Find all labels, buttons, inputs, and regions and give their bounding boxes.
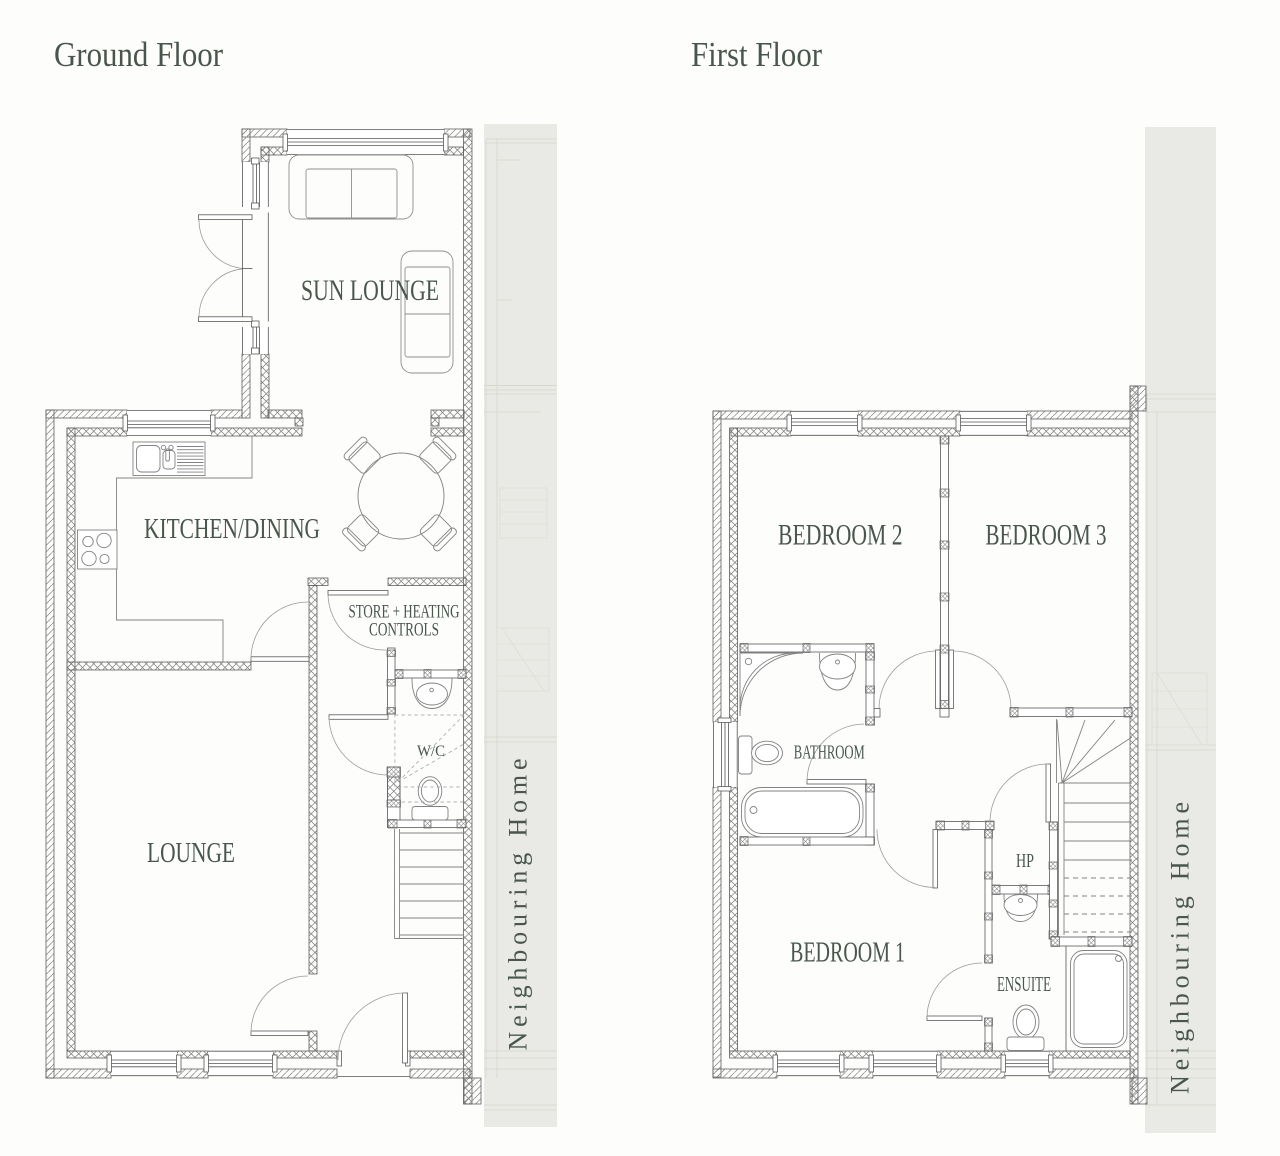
svg-text:W/C: W/C	[417, 743, 445, 760]
svg-text:CONTROLS: CONTROLS	[369, 620, 439, 641]
svg-text:BATHROOM: BATHROOM	[794, 743, 865, 764]
svg-text:Neighbouring Home: Neighbouring Home	[1166, 802, 1195, 1094]
svg-text:LOUNGE: LOUNGE	[147, 837, 235, 869]
svg-text:Neighbouring Home: Neighbouring Home	[504, 759, 533, 1051]
svg-text:First Floor: First Floor	[691, 35, 822, 74]
svg-text:ENSUITE: ENSUITE	[997, 972, 1051, 996]
svg-text:HP: HP	[1016, 850, 1034, 872]
svg-text:BEDROOM 1: BEDROOM 1	[790, 937, 905, 969]
svg-text:BEDROOM 3: BEDROOM 3	[986, 519, 1107, 552]
svg-text:Ground Floor: Ground Floor	[54, 35, 223, 74]
svg-text:BEDROOM 2: BEDROOM 2	[778, 519, 903, 552]
svg-text:SUN LOUNGE: SUN LOUNGE	[301, 274, 439, 307]
svg-text:KITCHEN/DINING: KITCHEN/DINING	[144, 513, 320, 545]
